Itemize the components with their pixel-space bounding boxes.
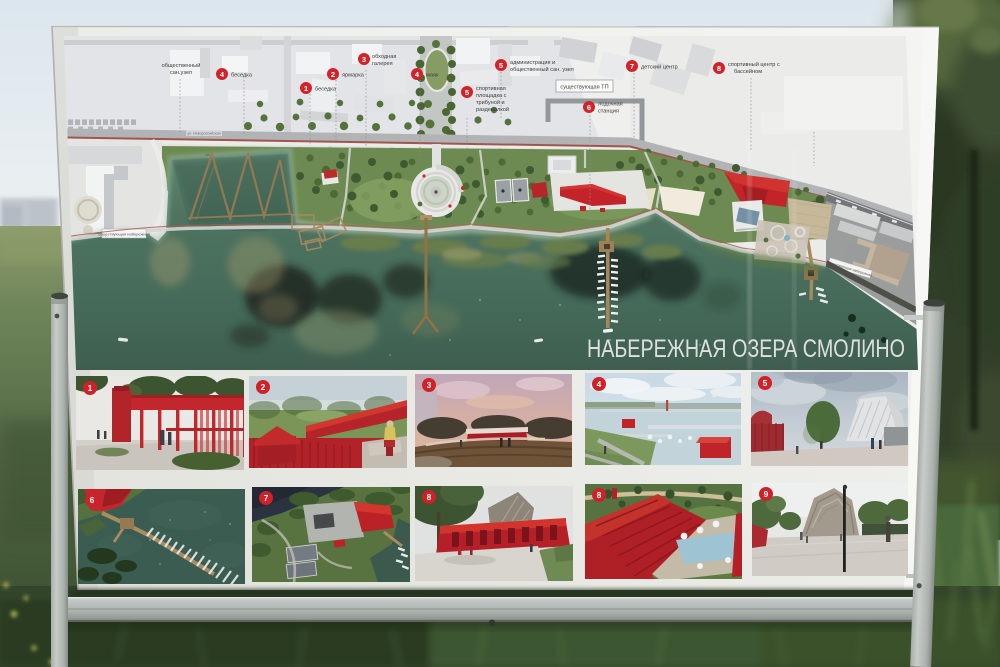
svg-text:беседка: беседка <box>315 86 337 92</box>
svg-text:7: 7 <box>264 493 269 503</box>
svg-text:детский центр: детский центр <box>641 63 678 70</box>
svg-text:ярмарка: ярмарка <box>342 72 365 78</box>
svg-text:администрация и: администрация и <box>510 60 555 66</box>
svg-text:5: 5 <box>763 378 768 388</box>
svg-text:8: 8 <box>597 490 602 500</box>
svg-text:станция: станция <box>598 109 619 115</box>
svg-text:существующая ТП: существующая ТП <box>560 84 608 90</box>
svg-text:спортивная: спортивная <box>476 86 506 92</box>
svg-text:2: 2 <box>331 70 335 79</box>
svg-text:ул. Новороссийская: ул. Новороссийская <box>187 132 220 136</box>
svg-text:9: 9 <box>764 489 769 499</box>
svg-text:2: 2 <box>261 382 266 392</box>
svg-text:8: 8 <box>717 64 721 73</box>
svg-text:площадка с: площадка с <box>476 93 507 99</box>
svg-text:сан.узел: сан.узел <box>170 70 192 76</box>
svg-text:лодочная: лодочная <box>598 102 623 108</box>
svg-text:7: 7 <box>630 62 634 71</box>
svg-text:3: 3 <box>362 55 366 64</box>
svg-text:6: 6 <box>587 103 591 112</box>
svg-text:общественный: общественный <box>162 62 201 69</box>
svg-text:маяк: маяк <box>426 72 439 78</box>
svg-text:галерея: галерея <box>372 61 393 67</box>
svg-text:бассейном: бассейном <box>734 68 762 75</box>
svg-text:1: 1 <box>88 383 93 393</box>
svg-text:спортивный центр с: спортивный центр с <box>728 61 780 68</box>
svg-text:4: 4 <box>597 379 602 389</box>
svg-text:беседка: беседка <box>231 72 253 78</box>
svg-text:3: 3 <box>427 380 432 390</box>
svg-text:8: 8 <box>427 492 432 502</box>
svg-text:раздевалкой: раздевалкой <box>476 106 509 113</box>
svg-text:существующая набережная: существующая набережная <box>98 232 150 237</box>
svg-text:обходная: обходная <box>372 54 396 60</box>
svg-text:НАБЕРЕЖНАЯ ОЗЕРА СМОЛИНО: НАБЕРЕЖНАЯ ОЗЕРА СМОЛИНО <box>587 335 905 363</box>
svg-text:трибуной и: трибуной и <box>476 99 505 106</box>
svg-text:6: 6 <box>90 495 95 505</box>
svg-text:общественный сан. узел: общественный сан. узел <box>510 66 574 73</box>
